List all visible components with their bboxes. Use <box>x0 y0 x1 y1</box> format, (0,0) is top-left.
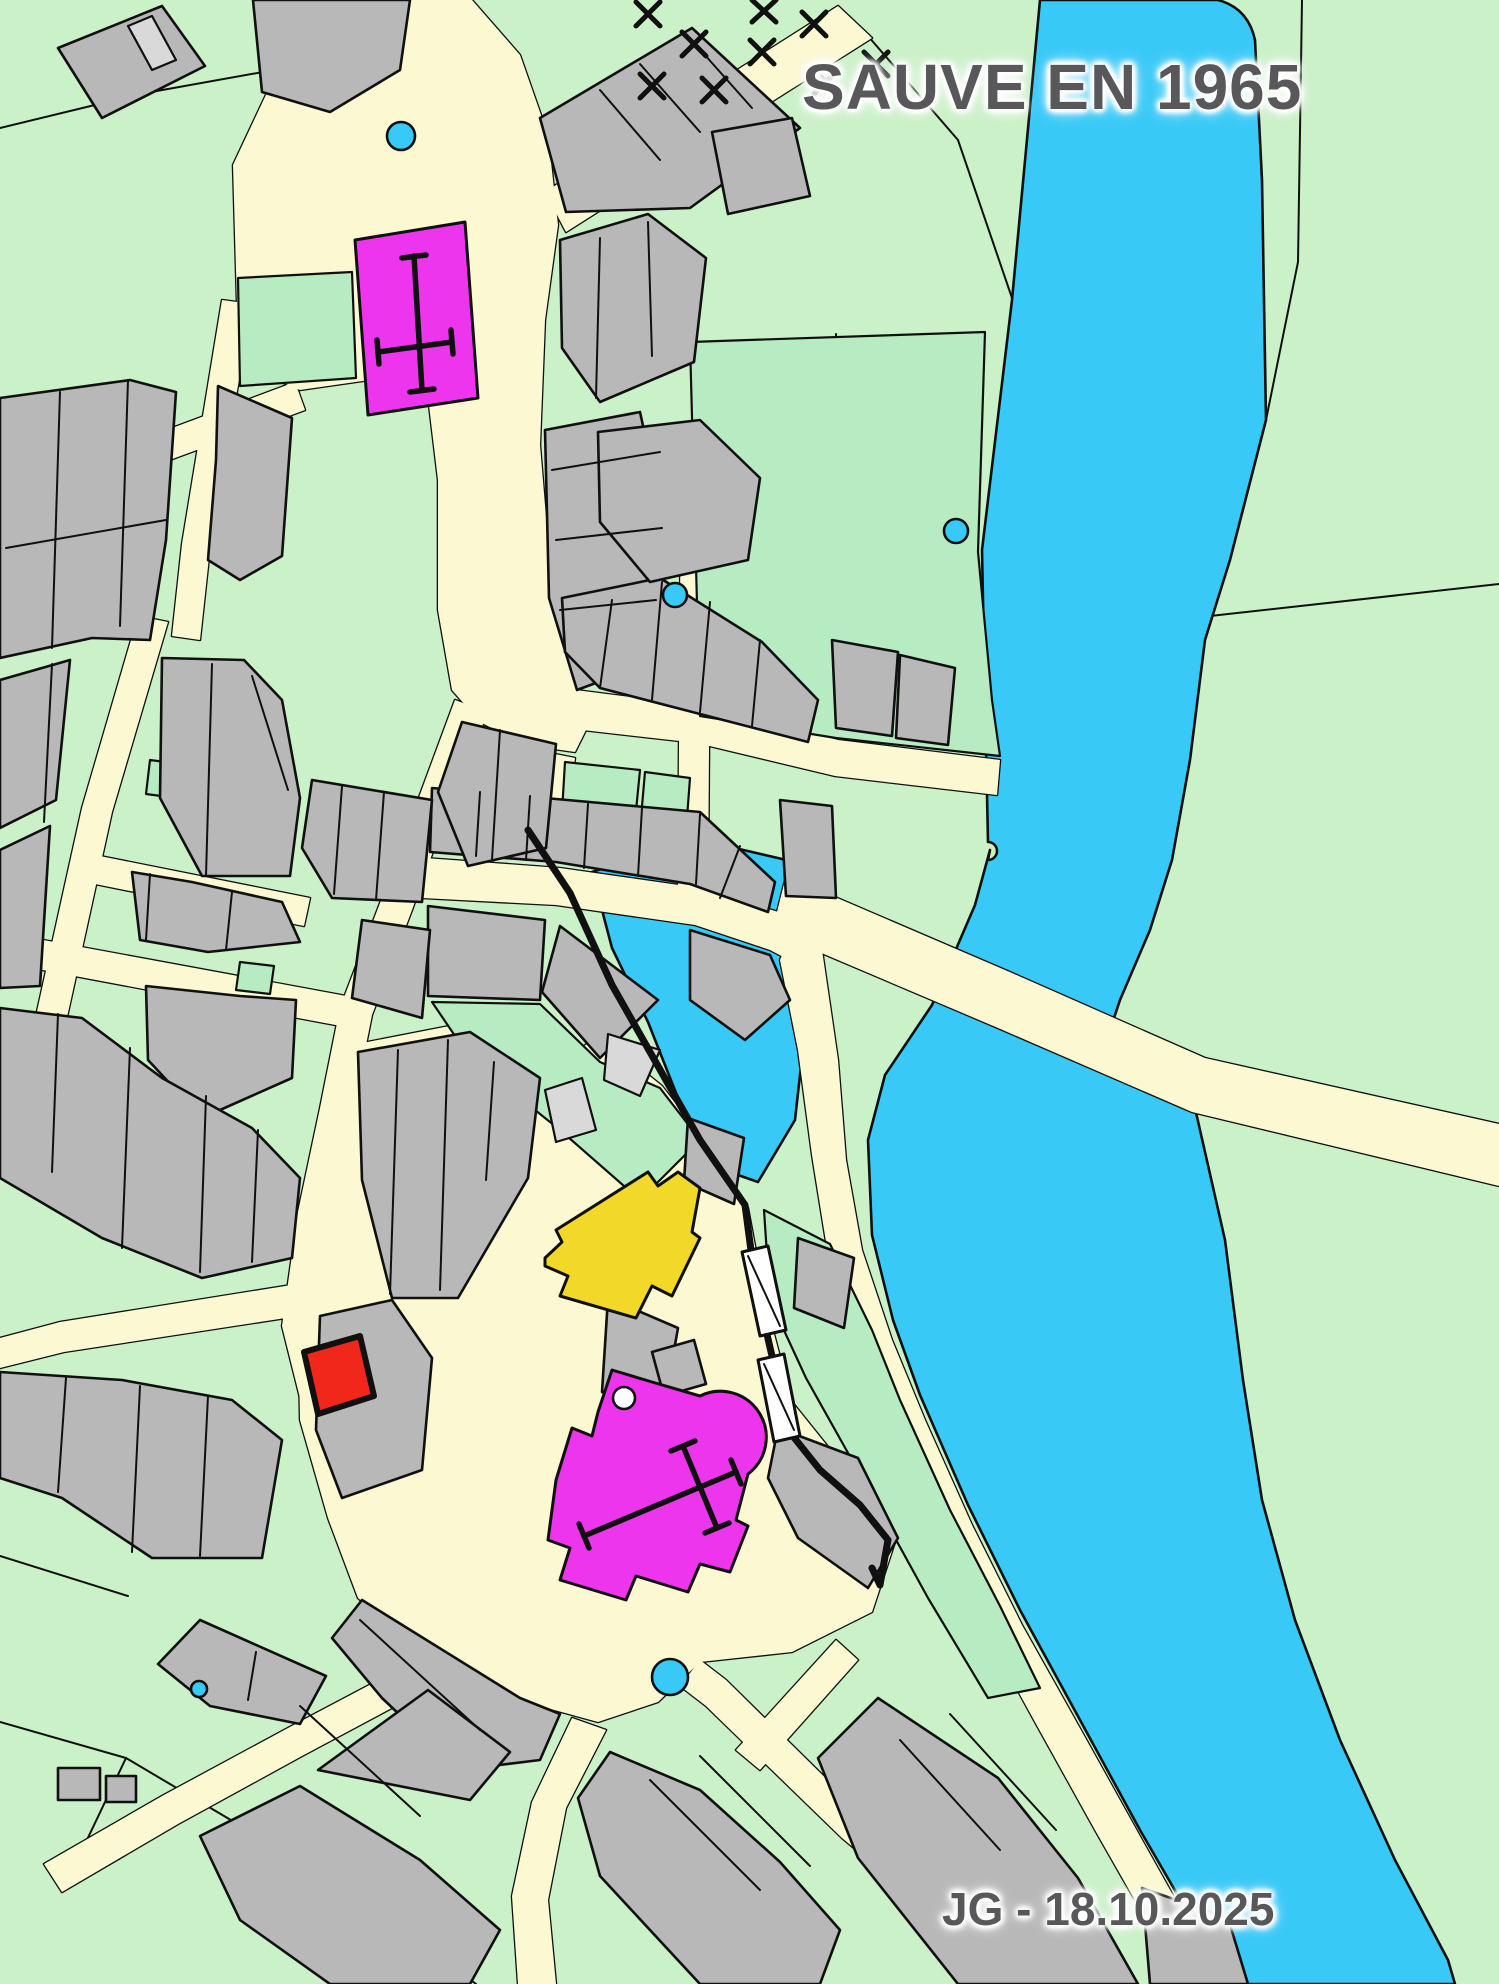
fountain <box>652 1659 688 1695</box>
town-map-sauve <box>0 0 1499 1984</box>
fountain <box>663 583 687 607</box>
fountain <box>944 519 968 543</box>
map-signature: JG - 18.10.2025 <box>942 1882 1274 1936</box>
north-church <box>355 222 478 415</box>
red-building <box>304 1336 374 1414</box>
fountain <box>387 122 415 150</box>
church-square-green <box>238 272 356 386</box>
map-title: SAUVE EN 1965 <box>802 50 1302 124</box>
fountain <box>191 1681 207 1697</box>
map-canvas: SAUVE EN 1965 JG - 18.10.2025 <box>0 0 1499 1984</box>
church-tower-icon <box>613 1387 635 1409</box>
